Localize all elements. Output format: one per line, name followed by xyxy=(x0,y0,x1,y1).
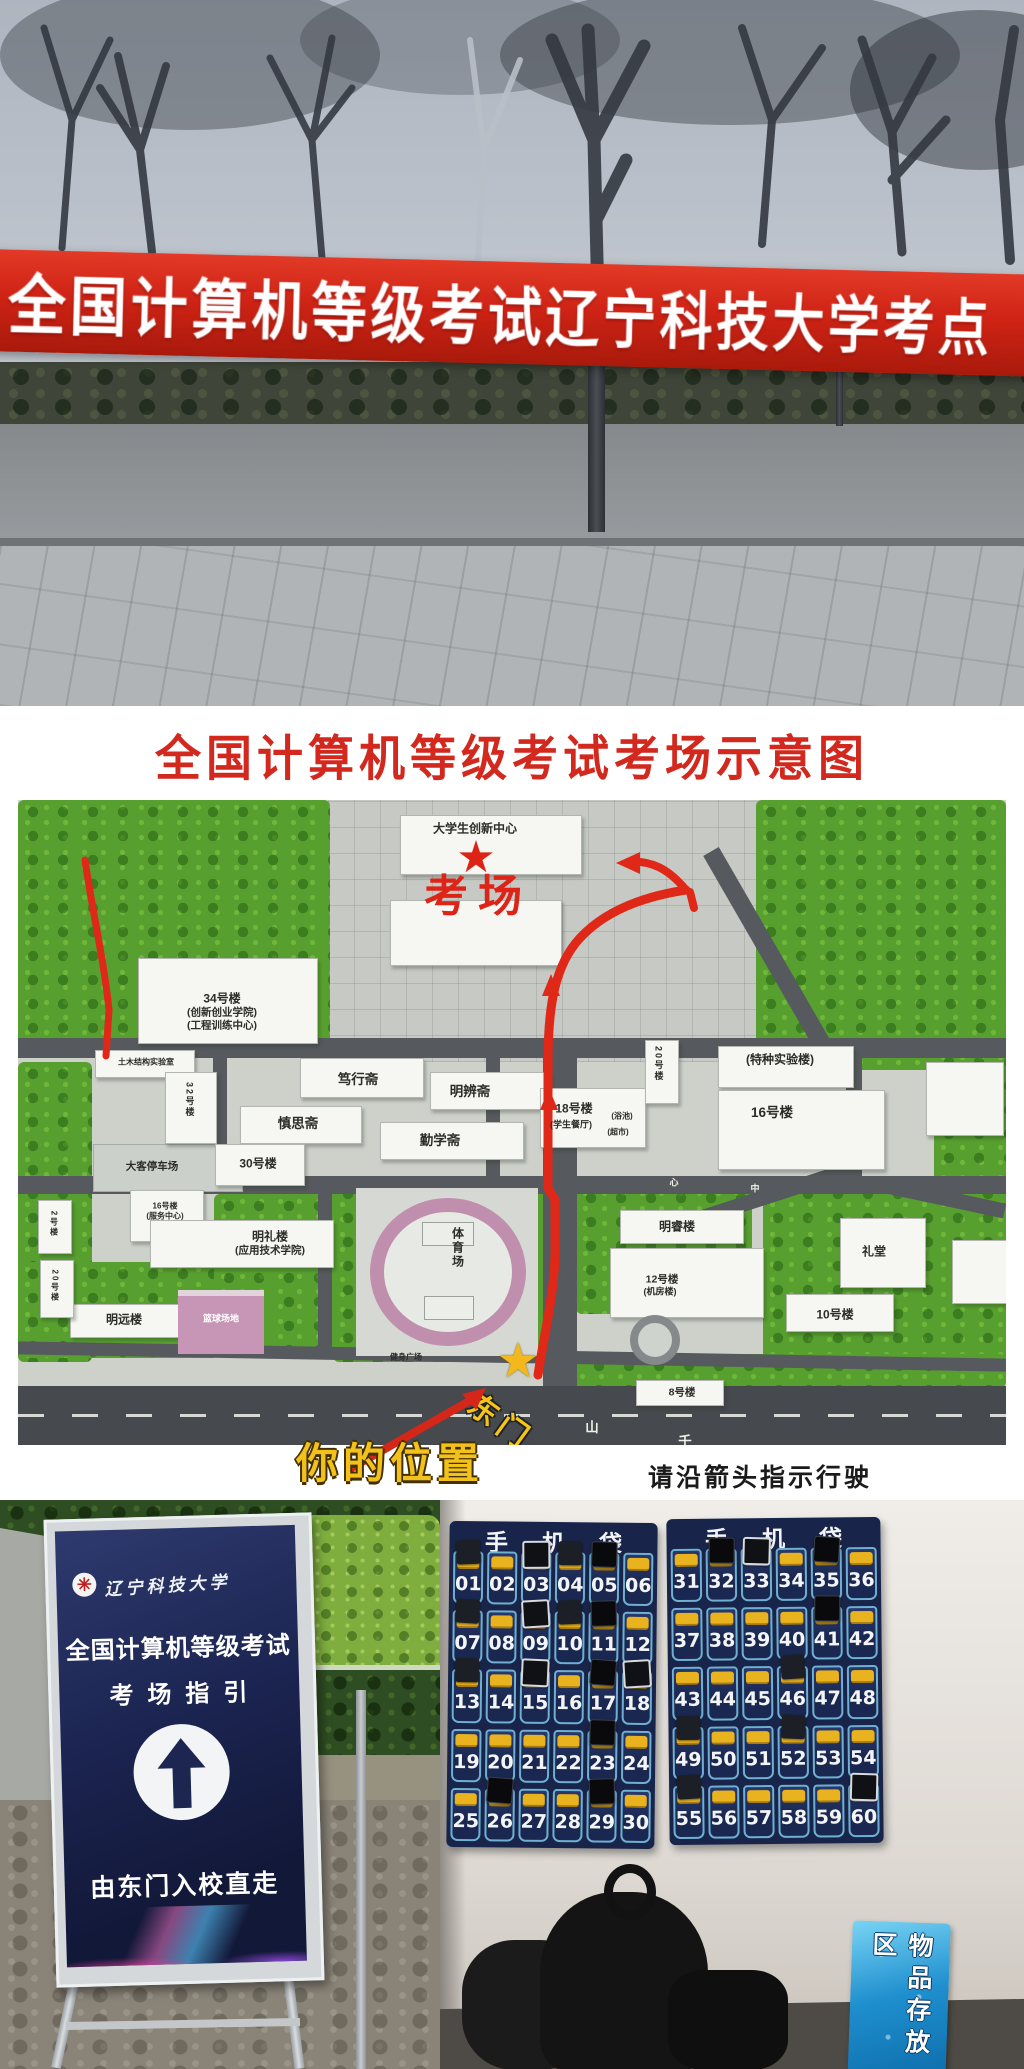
phone-storage-photo: 手机袋 010203040506070809101112131415161718… xyxy=(440,1500,1024,2069)
pouch-number: 53 xyxy=(815,1747,842,1769)
pouch-number: 36 xyxy=(848,1569,875,1591)
stored-phone xyxy=(522,1541,550,1569)
pouch-number: 22 xyxy=(555,1752,581,1774)
map-label: 篮球场地 xyxy=(203,1312,239,1325)
drive-direction-note: 请沿箭头指示行驶 xyxy=(648,1458,872,1494)
pouch-elastic xyxy=(625,1735,647,1748)
phone-pouch: 06 xyxy=(623,1553,654,1606)
pouch-elastic xyxy=(712,1731,735,1744)
stored-phone xyxy=(558,1541,582,1565)
pouch-elastic xyxy=(745,1612,768,1625)
phone-pouch: 51 xyxy=(742,1726,774,1780)
pouch-number: 16 xyxy=(556,1692,582,1714)
phone-pouch: 35 xyxy=(811,1547,843,1601)
map-label: 2号楼 xyxy=(49,1211,60,1237)
map-label: 心 xyxy=(669,1176,678,1189)
pouch-number: 42 xyxy=(848,1628,875,1650)
map-label: 千 xyxy=(678,1430,692,1445)
phone-pouch: 26 xyxy=(484,1788,515,1842)
phone-pouch: 36 xyxy=(846,1547,878,1601)
phone-pouch: 07 xyxy=(452,1610,483,1664)
pouch-elastic xyxy=(627,1558,649,1571)
pouch-number: 44 xyxy=(709,1689,736,1711)
phone-pouch: 21 xyxy=(519,1729,550,1783)
pouch-number: 25 xyxy=(452,1810,478,1832)
phone-pouch: 19 xyxy=(451,1729,482,1783)
exam-guide-collage: 全国计算机等级考试辽宁科技大学考点 全国计算机等级考试考场示意图 xyxy=(0,0,1024,2069)
straight-ahead-arrow-icon xyxy=(132,1723,231,1822)
banner-photo: 全国计算机等级考试辽宁科技大学考点 xyxy=(0,0,1024,706)
pouch-number: 43 xyxy=(674,1689,701,1711)
phone-pouch: 01 xyxy=(453,1551,484,1604)
pouch-number: 05 xyxy=(591,1574,617,1596)
phone-pouch: 54 xyxy=(847,1725,879,1779)
map-label: 土木结构实验室 xyxy=(118,1057,174,1068)
map-label: 笃行斋 xyxy=(338,1068,379,1088)
pouch-number: 49 xyxy=(675,1748,702,1770)
pouch-number: 13 xyxy=(454,1691,480,1713)
bag-pile xyxy=(668,1970,788,2069)
neon-decoration xyxy=(65,1903,307,1968)
your-location-label: 你的位置 xyxy=(296,1430,484,1491)
stored-phone xyxy=(676,1715,700,1739)
pouch-number: 29 xyxy=(588,1811,614,1833)
map-label: 30号楼 xyxy=(239,1155,276,1172)
map-label: 明辨斋 xyxy=(450,1080,491,1100)
map-label: (应用技术学院) xyxy=(235,1243,305,1258)
phone-pouch: 04 xyxy=(555,1552,586,1605)
pouch-number: 21 xyxy=(521,1751,547,1773)
map-label: (特种实验楼) xyxy=(746,1051,814,1068)
pouch-elastic xyxy=(747,1731,770,1744)
pouch-number: 33 xyxy=(743,1570,770,1592)
pouch-elastic xyxy=(817,1789,840,1802)
map-label: 16号楼 xyxy=(751,1101,793,1121)
pouch-elastic xyxy=(675,1613,698,1626)
pouch-number: 19 xyxy=(453,1751,479,1773)
stored-phone xyxy=(455,1599,480,1624)
phone-pouch: 34 xyxy=(776,1548,808,1602)
phone-pouch: 29 xyxy=(586,1789,617,1843)
tree-trunk xyxy=(588,362,605,532)
exam-sign-photo: ✳ 辽宁科技大学 全国计算机等级考试 考场指引 由东门入校直走 xyxy=(0,1500,440,2069)
pouch-elastic xyxy=(816,1671,839,1684)
pouch-number: 39 xyxy=(743,1629,770,1651)
pouch-elastic xyxy=(780,1612,803,1625)
pouch-elastic xyxy=(523,1793,545,1806)
pouch-number: 35 xyxy=(813,1569,840,1591)
pouch-elastic xyxy=(710,1613,733,1626)
map-label: 明远楼 xyxy=(106,1311,142,1328)
pouch-number: 51 xyxy=(745,1748,772,1770)
pouch-number: 59 xyxy=(815,1806,842,1828)
phone-pouch: 42 xyxy=(846,1606,878,1660)
pouch-elastic xyxy=(558,1675,580,1688)
phone-pouch: 43 xyxy=(672,1667,704,1721)
storage-area-sign: 物品存放区 xyxy=(847,1920,951,2069)
map-label: (超市) xyxy=(607,1127,628,1138)
pouch-number: 11 xyxy=(590,1634,616,1656)
pouch-number: 28 xyxy=(554,1811,580,1833)
pouch-number: 52 xyxy=(780,1747,807,1769)
pouch-number: 14 xyxy=(488,1692,514,1714)
stored-phone xyxy=(455,1658,479,1682)
pouch-elastic xyxy=(712,1790,735,1803)
phone-pouch: 58 xyxy=(778,1784,810,1838)
stored-phone xyxy=(708,1537,734,1563)
pouch-number: 01 xyxy=(455,1573,481,1595)
phone-pouch: 38 xyxy=(706,1608,738,1662)
pouch-number: 18 xyxy=(624,1693,650,1715)
phone-pouch: 27 xyxy=(518,1788,549,1842)
phone-pouch: 03 xyxy=(521,1552,552,1605)
pouch-number: 20 xyxy=(487,1751,513,1773)
pouch-number: 41 xyxy=(813,1628,840,1650)
pouch-number: 32 xyxy=(708,1570,735,1592)
stored-phone xyxy=(589,1659,617,1687)
pouch-elastic xyxy=(850,1552,873,1565)
pouch-number: 38 xyxy=(708,1630,735,1652)
pouch-number: 08 xyxy=(488,1633,514,1655)
phone-pouch: 57 xyxy=(743,1785,775,1839)
phone-pouch: 45 xyxy=(742,1666,774,1720)
pouch-number: 10 xyxy=(556,1633,582,1655)
phone-pouch: 13 xyxy=(452,1669,483,1723)
pouch-elastic xyxy=(711,1672,734,1685)
phone-pouch: 46 xyxy=(777,1666,809,1720)
metal-pole xyxy=(356,1690,366,2069)
pouch-number: 56 xyxy=(710,1807,737,1829)
pouch-number: 23 xyxy=(589,1752,615,1774)
backpack-handle xyxy=(604,1864,656,1920)
pouch-elastic xyxy=(557,1794,579,1807)
phone-pouch: 16 xyxy=(554,1670,585,1724)
map-label: 明睿楼 xyxy=(659,1218,695,1235)
phone-pouch: 10 xyxy=(554,1611,585,1665)
phone-pouch: 23 xyxy=(587,1730,618,1784)
exam-title: 全国计算机等级考试 xyxy=(58,1625,299,1667)
phone-pouch: 49 xyxy=(672,1726,704,1780)
pouch-number: 40 xyxy=(778,1629,805,1651)
pouch-number: 04 xyxy=(557,1574,583,1596)
university-seal-icon: ✳ xyxy=(72,1572,97,1597)
pouch-number: 31 xyxy=(673,1571,700,1593)
phone-pouch: 11 xyxy=(588,1612,619,1666)
pouch-number: 30 xyxy=(622,1812,648,1834)
storage-area-sign-text: 物品存放区 xyxy=(860,1931,937,2069)
phone-pouch: 20 xyxy=(485,1729,516,1783)
pouch-number: 60 xyxy=(850,1806,877,1828)
phone-pouch-panel-left: 手机袋 010203040506070809101112131415161718… xyxy=(446,1521,657,1849)
stored-phone xyxy=(676,1774,701,1799)
pouch-elastic xyxy=(491,1556,513,1569)
phone-pouch: 60 xyxy=(848,1784,880,1838)
map-label: 10号楼 xyxy=(816,1306,853,1323)
pouch-elastic xyxy=(491,1616,513,1629)
curb xyxy=(0,538,1024,546)
phone-pouch: 02 xyxy=(487,1551,518,1604)
pouch-number: 07 xyxy=(454,1632,480,1654)
map-label: 中 xyxy=(750,1182,759,1195)
pouch-number: 58 xyxy=(780,1806,807,1828)
stored-phone xyxy=(812,1536,839,1563)
road xyxy=(0,424,1024,542)
guide-sign-board: ✳ 辽宁科技大学 全国计算机等级考试 考场指引 由东门入校直走 xyxy=(44,1512,325,1987)
stored-phone xyxy=(742,1537,771,1566)
map-label: 慎思斋 xyxy=(278,1112,319,1132)
exam-room-label: 考场 xyxy=(424,860,532,924)
guide-sign-face: ✳ 辽宁科技大学 全国计算机等级考试 考场指引 由东门入校直走 xyxy=(55,1525,307,1968)
map-label: 山 xyxy=(585,1416,599,1436)
pouch-number: 55 xyxy=(675,1808,702,1830)
map-label: (浴池) xyxy=(611,1111,632,1122)
stored-phone xyxy=(622,1659,652,1689)
map-label: 8号楼 xyxy=(669,1385,696,1400)
phone-pouch: 05 xyxy=(589,1552,620,1605)
pouch-elastic xyxy=(782,1789,805,1802)
map-label: 32号楼 xyxy=(184,1082,197,1118)
pouch-elastic xyxy=(852,1730,875,1743)
pouch-elastic xyxy=(490,1675,512,1688)
phone-pouch: 55 xyxy=(673,1786,705,1840)
map-label: (学生餐厅) xyxy=(550,1118,592,1131)
phone-pouch: 39 xyxy=(741,1607,773,1661)
pouch-number: 48 xyxy=(849,1687,876,1709)
map-label: 勤学斋 xyxy=(420,1129,461,1149)
campus-map: 大学生创新中心34号楼(创新创业学院)(工程训练中心)土木结构实验室32号楼笃行… xyxy=(18,800,1006,1445)
map-label: (机房楼) xyxy=(644,1285,677,1298)
pouch-elastic xyxy=(455,1734,477,1747)
pouch-number: 12 xyxy=(624,1634,650,1656)
phone-pouch: 12 xyxy=(622,1612,653,1666)
pouch-number: 24 xyxy=(623,1752,649,1774)
map-label: 18号楼 xyxy=(555,1100,592,1117)
stored-phone xyxy=(780,1714,805,1739)
pouch-elastic xyxy=(676,1672,699,1685)
pouch-number: 06 xyxy=(625,1575,651,1597)
pouch-elastic xyxy=(817,1730,840,1743)
pouch-number: 09 xyxy=(522,1633,548,1655)
map-label: 20号楼 xyxy=(653,1046,666,1082)
map-label: (服务中心) xyxy=(146,1211,183,1222)
phone-pouch: 08 xyxy=(486,1611,517,1665)
map-label: 健身广场 xyxy=(390,1352,422,1363)
phone-pouch: 50 xyxy=(707,1726,739,1780)
pouch-number: 15 xyxy=(522,1692,548,1714)
phone-pouch-panel-right: 手机袋 313233343536373839404142434445464748… xyxy=(666,1517,883,1845)
phone-pouch: 30 xyxy=(620,1790,651,1844)
pouch-elastic xyxy=(746,1671,769,1684)
phone-pouch: 47 xyxy=(812,1666,844,1720)
map-label: 礼堂 xyxy=(862,1243,886,1260)
stored-phone xyxy=(486,1776,514,1804)
map-label: 体育场 xyxy=(450,1227,467,1269)
pouch-number: 26 xyxy=(486,1810,512,1832)
stored-phone xyxy=(849,1773,878,1802)
phone-pouch: 40 xyxy=(776,1607,808,1661)
pouch-elastic xyxy=(557,1735,579,1748)
phone-pouch: 33 xyxy=(741,1548,773,1602)
pouch-number: 34 xyxy=(778,1570,805,1592)
phone-pouch: 17 xyxy=(588,1671,619,1725)
phone-pouch: 09 xyxy=(520,1611,551,1665)
stored-phone xyxy=(557,1600,582,1625)
pouch-elastic xyxy=(675,1554,698,1567)
stored-phone xyxy=(591,1541,618,1568)
stored-phone xyxy=(589,1719,616,1746)
phone-pouch: 48 xyxy=(847,1665,879,1719)
stored-phone xyxy=(456,1540,481,1565)
phone-pouch: 15 xyxy=(520,1670,551,1724)
pouch-number: 27 xyxy=(520,1810,546,1832)
pouch-elastic xyxy=(489,1734,511,1747)
phone-pouch: 22 xyxy=(553,1730,584,1784)
phone-pouch: 59 xyxy=(813,1784,845,1838)
phone-pouch: 32 xyxy=(706,1548,738,1602)
phone-pouch: 18 xyxy=(622,1671,653,1725)
stored-phone xyxy=(590,1600,617,1627)
pouch-number: 46 xyxy=(779,1688,806,1710)
university-name: 辽宁科技大学 xyxy=(104,1564,285,1600)
pouch-number: 54 xyxy=(850,1747,877,1769)
phone-pouch: 44 xyxy=(707,1667,739,1721)
phone-pouch: 52 xyxy=(777,1725,809,1779)
stored-phone xyxy=(780,1654,805,1679)
pouch-number: 57 xyxy=(745,1807,772,1829)
pouch-number: 02 xyxy=(489,1573,515,1595)
pouch-elastic xyxy=(850,1611,873,1624)
direction-text: 由东门入校直走 xyxy=(64,1863,305,1906)
pouch-number: 47 xyxy=(814,1688,841,1710)
pouch-number: 45 xyxy=(744,1688,771,1710)
phone-pouch: 24 xyxy=(621,1730,652,1784)
banner-text: 全国计算机等级考试辽宁科技大学考点 xyxy=(7,253,994,368)
pouch-elastic xyxy=(851,1670,874,1683)
pouch-elastic xyxy=(625,1795,647,1808)
phone-pouch: 37 xyxy=(671,1608,703,1662)
map-label: (工程训练中心) xyxy=(187,1018,257,1033)
phone-pouch: 53 xyxy=(812,1725,844,1779)
stored-phone xyxy=(521,1599,551,1629)
pouch-elastic xyxy=(627,1617,649,1630)
stored-phone xyxy=(521,1659,550,1688)
pouch-elastic xyxy=(747,1790,770,1803)
pouch-number: 03 xyxy=(523,1574,549,1596)
phone-pouch: 14 xyxy=(486,1670,517,1724)
stored-phone xyxy=(589,1778,616,1805)
pouch-number: 37 xyxy=(673,1630,700,1652)
phone-pouch: 41 xyxy=(811,1606,843,1660)
map-label: 20号楼 xyxy=(50,1270,61,1303)
pouch-number: 50 xyxy=(710,1748,737,1770)
sidewalk xyxy=(0,546,1024,706)
phone-pouch: 31 xyxy=(671,1549,703,1603)
guide-subtitle: 考场指引 xyxy=(65,1671,306,1713)
map-label: 大客停车场 xyxy=(126,1159,179,1174)
stored-phone xyxy=(814,1596,840,1622)
map-title: 全国计算机等级考试考场示意图 xyxy=(0,720,1024,789)
phone-pouch: 56 xyxy=(708,1785,740,1839)
phone-pouch: 28 xyxy=(552,1789,583,1843)
pouch-elastic xyxy=(455,1793,477,1806)
phone-pouch: 25 xyxy=(450,1788,481,1842)
pouch-number: 17 xyxy=(590,1693,616,1715)
pouch-elastic xyxy=(523,1734,545,1747)
pouch-elastic xyxy=(780,1553,803,1566)
